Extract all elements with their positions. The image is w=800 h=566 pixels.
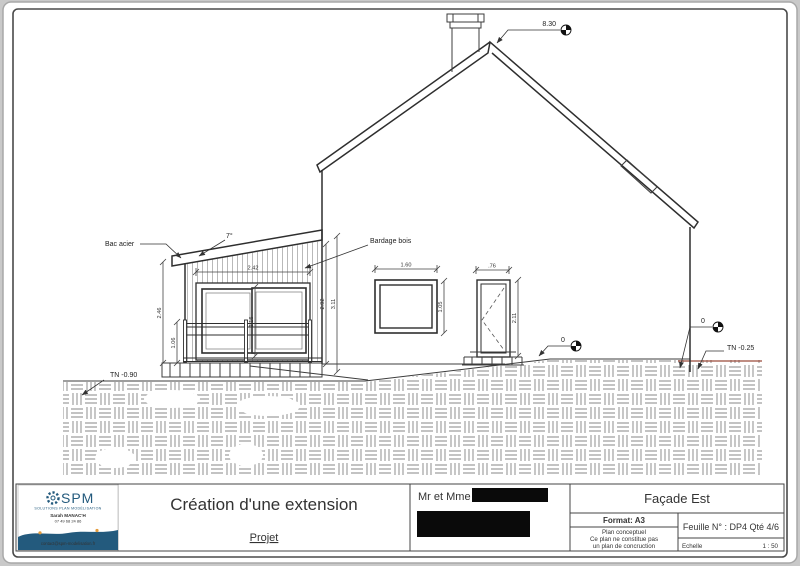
tn-left-label: TN -0.90 <box>110 372 137 379</box>
ridge-level-text: 8.30 <box>542 21 556 28</box>
bardage-bois-label: Bardage bois <box>370 238 412 245</box>
dim-window-height: 1.05 <box>438 302 444 313</box>
hatch-gap <box>229 444 263 466</box>
dim-ext-height-left: 2.46 <box>157 308 163 319</box>
dim-ext-bay-width: 2.42 <box>248 266 259 272</box>
logo-card: SPM SOLUTIONS PLAN MODÉLISATION Sarah MA… <box>18 485 118 550</box>
tn-right-label: TN -0.25 <box>727 345 754 352</box>
roof-slope-label: 7° <box>226 232 233 240</box>
redaction-box <box>472 488 548 502</box>
level-symbol <box>571 341 581 351</box>
drawing-canvas: 2.42 2.46 1.06 2.16 2.92 3.11 1.60 1.05 … <box>0 0 800 566</box>
hatch-gap <box>144 390 200 408</box>
disclaimer-line: Plan conceptuel <box>602 529 646 536</box>
format-label: Format: A3 <box>603 516 645 525</box>
zero-door-text: 0 <box>561 337 565 344</box>
level-symbol <box>713 322 723 332</box>
level-symbol <box>561 25 571 35</box>
redaction-box <box>417 511 530 537</box>
contact-phone: 07 49 68 24 86 <box>55 519 82 524</box>
bac-acier-label: Bac acier <box>105 241 135 248</box>
page-title: Création d'une extension <box>170 495 358 514</box>
dim-door-height: 2.11 <box>512 313 518 323</box>
client-label: Mr et Mme <box>418 491 471 503</box>
sheet-number: Feuille N° : DP4 Qté 4/6 <box>683 522 779 532</box>
disclaimer-line: un plan de concruction <box>593 543 656 550</box>
project-subtitle: Projet <box>250 532 279 544</box>
hatch-gap <box>236 396 300 416</box>
scale-label: Echelle <box>682 543 703 550</box>
dim-door-width: .76 <box>488 264 496 270</box>
wave-dot-icon <box>38 531 41 534</box>
zero-corner-text: 0 <box>701 318 705 325</box>
view-title: Façade Est <box>644 491 710 506</box>
house-window <box>375 280 437 333</box>
dim-ext-wall-height: 2.92 <box>320 299 326 310</box>
dim-window-width: 1.60 <box>401 263 412 269</box>
dim-ext-total-height: 3.11 <box>331 299 337 309</box>
drawing-sheet: 2.42 2.46 1.06 2.16 2.92 3.11 1.60 1.05 … <box>0 0 800 566</box>
contact-email: contact@spm-modelisation.fr <box>41 541 96 546</box>
scale-value: 1 : 50 <box>763 543 779 550</box>
dim-railing-height: 1.06 <box>171 338 177 349</box>
hatch-gap <box>95 448 135 468</box>
contact-name: Sarah MANAC'H <box>50 513 86 518</box>
wave-dot-icon <box>95 529 98 532</box>
brand-name: SPM <box>61 490 94 506</box>
dim-bay-height: 2.16 <box>249 317 255 328</box>
disclaimer-line: Ce plan ne constitue pas <box>590 536 658 543</box>
brand-tagline: SOLUTIONS PLAN MODÉLISATION <box>34 506 101 511</box>
